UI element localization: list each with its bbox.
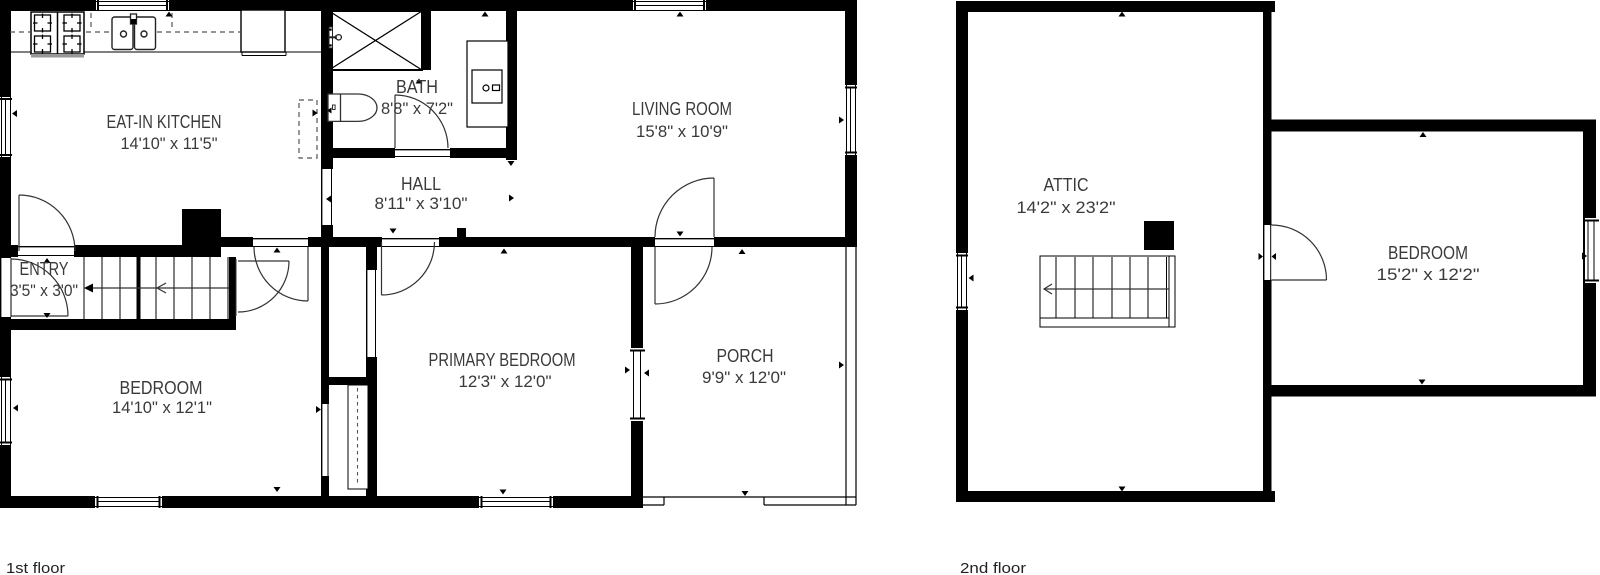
svg-text:BEDROOM: BEDROOM	[120, 378, 203, 398]
svg-text:15'8" x 10'9": 15'8" x 10'9"	[636, 122, 728, 141]
svg-text:1st floor: 1st floor	[6, 560, 65, 575]
svg-text:12'3" x 12'0": 12'3" x 12'0"	[459, 372, 552, 391]
svg-text:3'5" x 3'0": 3'5" x 3'0"	[10, 281, 78, 300]
svg-text:EAT-IN KITCHEN: EAT-IN KITCHEN	[107, 112, 222, 132]
svg-text:LIVING ROOM: LIVING ROOM	[632, 99, 732, 119]
svg-text:14'10" x 11'5": 14'10" x 11'5"	[121, 134, 218, 153]
svg-text:BATH: BATH	[396, 77, 438, 97]
svg-text:HALL: HALL	[401, 174, 441, 194]
svg-text:PORCH: PORCH	[717, 346, 774, 366]
svg-text:BEDROOM: BEDROOM	[1388, 243, 1468, 263]
svg-text:14'10" x 12'1": 14'10" x 12'1"	[112, 398, 212, 417]
svg-text:ATTIC: ATTIC	[1044, 175, 1089, 195]
svg-text:ENTRY: ENTRY	[20, 259, 69, 279]
svg-text:9'9" x 12'0": 9'9" x 12'0"	[702, 368, 786, 387]
svg-text:2nd floor: 2nd floor	[960, 560, 1026, 575]
svg-text:8'8" x 7'2": 8'8" x 7'2"	[381, 99, 453, 118]
svg-text:8'11" x 3'10": 8'11" x 3'10"	[375, 194, 468, 213]
svg-text:14'2" x 23'2": 14'2" x 23'2"	[1017, 198, 1116, 217]
svg-text:15'2" x 12'2": 15'2" x 12'2"	[1377, 265, 1480, 284]
svg-text:PRIMARY BEDROOM: PRIMARY BEDROOM	[429, 350, 576, 370]
